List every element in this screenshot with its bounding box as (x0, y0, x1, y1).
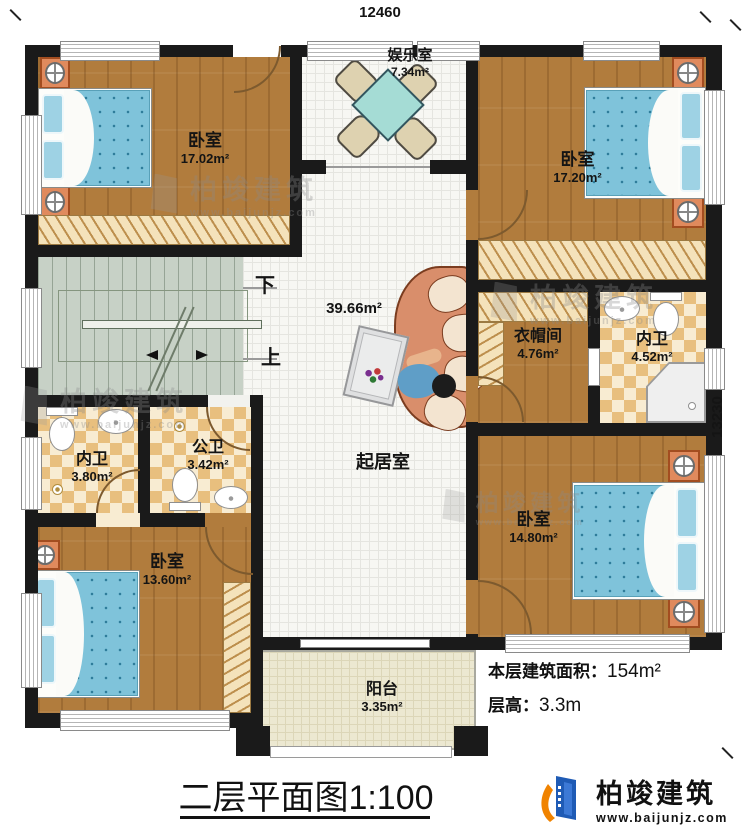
room-label-bath-public: 公卫 3.42m² (164, 438, 252, 473)
pillow (42, 94, 64, 134)
brand-logo-icon (536, 770, 588, 826)
title-underline (180, 816, 430, 819)
watermark: 柏竣建筑 www.baijunjz.com (148, 168, 318, 219)
toilet-icon (172, 468, 198, 502)
lamp-icon (673, 601, 695, 623)
floor-height-line: 层高：3.3m (488, 694, 581, 718)
door-gap (466, 376, 478, 422)
lamp-icon (673, 455, 695, 477)
lamp-icon (677, 62, 699, 84)
window (21, 437, 42, 510)
room-label-cloakroom: 衣帽间 4.76m² (492, 327, 584, 362)
nightstand (668, 596, 700, 628)
room-label-bedroom-tr: 卧室 17.20m² (520, 150, 635, 186)
floor-area-label: 本层建筑面积： (488, 662, 607, 681)
wall-v-bedroomtl (290, 45, 302, 257)
window (21, 115, 42, 215)
watermark-logo-icon (148, 174, 182, 214)
watermark: 柏竣建筑 www.baijunjz.com (18, 380, 188, 431)
watermark-url: www.baijunjz.com (530, 315, 658, 327)
watermark-url: www.baijunjz.com (60, 419, 188, 431)
door-gap (466, 190, 478, 240)
corner-tick (9, 9, 21, 21)
watermark-logo-icon (440, 489, 469, 523)
lamp-icon (35, 545, 55, 565)
brand-logo: 柏竣建筑 www.baijunjz.com (536, 770, 728, 826)
page-title: 二层平面图1:100 (150, 770, 462, 819)
floor-drain-icon (52, 484, 63, 495)
floor-height-value: 3.3m (539, 695, 581, 716)
pillow (676, 542, 698, 592)
dimension-right: 13230 (709, 387, 727, 447)
flowers (362, 366, 384, 384)
room-label-bath-left: 内卫 3.80m² (48, 450, 136, 485)
window (704, 348, 725, 390)
nightstand (40, 57, 70, 89)
stairs-down-label: 下 (252, 274, 278, 298)
floor-plan: 柏竣建筑 www.baijunjz.com 柏竣建筑 www.baijunjz.… (0, 0, 750, 839)
room-label-bedroom-br: 卧室 14.80m² (476, 510, 591, 546)
dimension-top: 12460 (338, 4, 422, 22)
balcony-column (236, 726, 270, 756)
room-label-entertainment: 娱乐室 7.34m² (370, 47, 450, 79)
wardrobe (38, 215, 290, 245)
pillow (680, 144, 702, 192)
door-gap (96, 513, 140, 527)
watermark: 柏竣建筑 www.baijunjz.com (488, 276, 658, 327)
brand-name: 柏竣建筑 (596, 772, 728, 811)
pillow (42, 140, 64, 180)
lamp-icon (677, 201, 699, 223)
door-gap (205, 513, 251, 527)
stairs-up-label: 上 (258, 346, 284, 370)
lamp-icon (45, 62, 65, 84)
toilet-tank (169, 502, 201, 511)
nightstand (672, 196, 704, 228)
wall-v-center-right (466, 45, 478, 649)
wardrobe (478, 240, 706, 280)
room-label-bedroom-tl: 卧室 17.02m² (150, 131, 260, 167)
wardrobe (223, 582, 251, 713)
window (704, 455, 725, 633)
room-label-living: 起居室 (338, 452, 428, 474)
floor-area-line: 本层建筑面积：154m² (488, 660, 661, 684)
floor-height-label: 层高： (488, 696, 539, 715)
corner-tick (729, 19, 741, 31)
window (21, 288, 42, 368)
door-gap (208, 395, 250, 407)
nightstand (40, 186, 70, 218)
balcony-parapet (270, 746, 452, 758)
lamp-icon (45, 191, 65, 213)
sink-icon (214, 486, 248, 509)
door-leaf (588, 348, 600, 386)
door-gap (466, 580, 478, 634)
stair-handrail (82, 320, 262, 329)
nightstand (668, 450, 700, 482)
window (505, 634, 690, 653)
stair-arrow-right (196, 350, 208, 360)
corner-tick (699, 11, 711, 23)
room-label-balcony: 阳台 3.35m² (336, 680, 428, 715)
shower-drain-icon (688, 402, 696, 410)
nightstand (672, 57, 704, 89)
balcony-column (454, 726, 488, 756)
brand-url: www.baijunjz.com (596, 811, 728, 825)
living-area-value: 39.66m² (312, 300, 396, 318)
sliding-door (300, 639, 430, 648)
person-head (432, 374, 456, 398)
watermark-logo-icon (488, 282, 522, 322)
window (60, 710, 230, 731)
room-label-bedroom-bl: 卧室 13.60m² (112, 552, 222, 588)
window (583, 41, 660, 61)
room-label-bath-right: 内卫 4.52m² (608, 330, 696, 365)
corner-tick (721, 747, 733, 759)
stair-arrow-left (146, 350, 158, 360)
pillow (680, 92, 702, 140)
watermark-url: www.baijunjz.com (190, 207, 318, 219)
watermark-logo-icon (18, 386, 52, 426)
window (21, 593, 42, 688)
entertainment-threshold (326, 166, 430, 168)
pillow (676, 488, 698, 538)
wall-stub-ent-right (430, 160, 478, 174)
window (704, 90, 725, 205)
floor-area-value: 154m² (607, 661, 661, 682)
watermark-name: 柏竣建筑 (530, 276, 658, 315)
watermark-name: 柏竣建筑 (190, 168, 318, 207)
wall-h-bedroomtl-bottom (25, 245, 302, 257)
wall-h-cloak-bottom (466, 423, 722, 436)
window (60, 41, 160, 61)
watermark-name: 柏竣建筑 (60, 380, 188, 419)
